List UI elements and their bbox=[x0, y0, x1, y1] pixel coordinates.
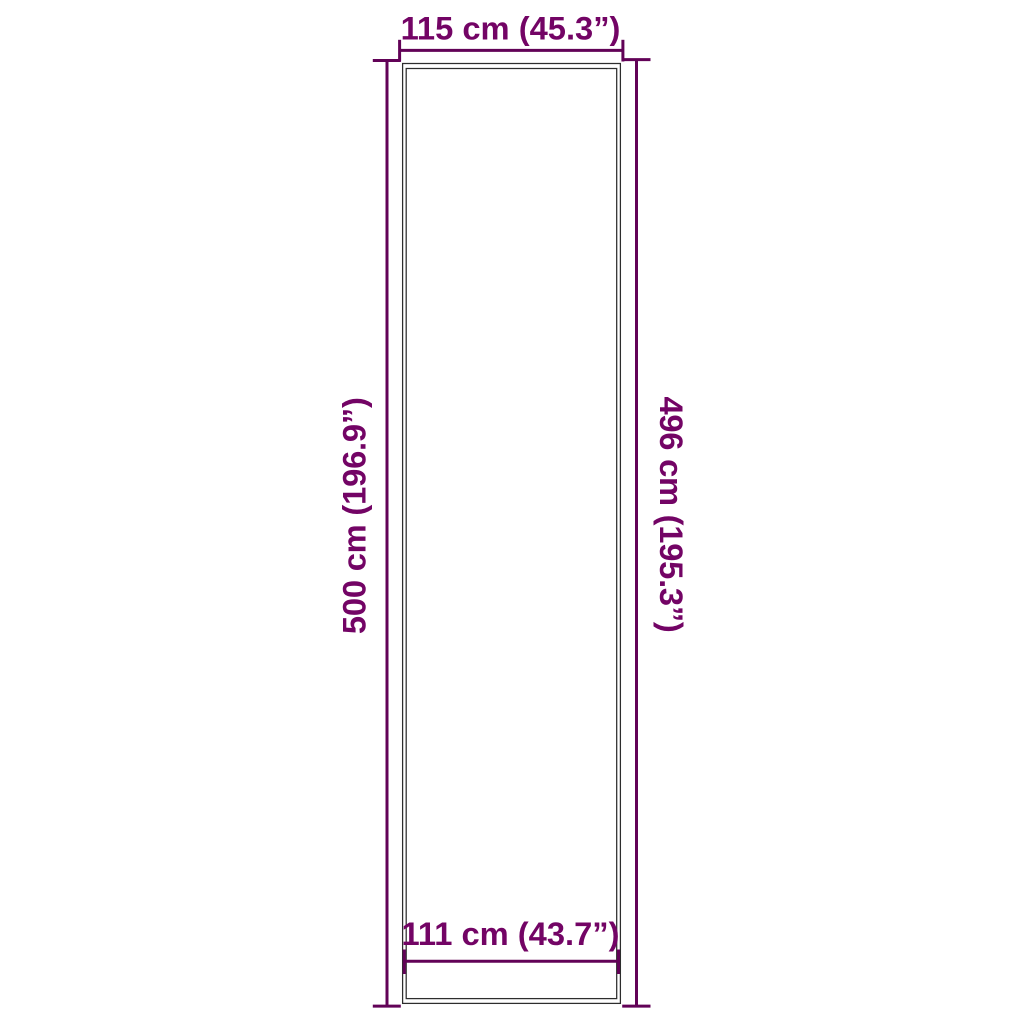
svg-text:111 cm (43.7”): 111 cm (43.7”) bbox=[401, 915, 619, 952]
svg-text:496 cm (195.3”): 496 cm (195.3”) bbox=[653, 396, 690, 632]
svg-text:500 cm (196.9”): 500 cm (196.9”) bbox=[336, 397, 373, 634]
svg-text:115 cm (45.3”): 115 cm (45.3”) bbox=[401, 10, 621, 47]
